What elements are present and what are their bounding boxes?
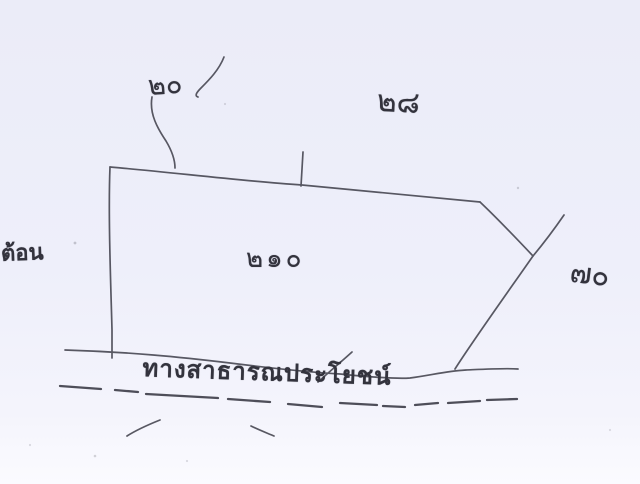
right-connector-line [480,202,533,256]
label-arrow-stroke [196,57,224,97]
left-boundary-line [109,167,112,358]
stray-mark-right [251,426,274,436]
scanned-land-sketch: ๒๐ ๒๘ ๒๑๐ ๗๐ ต้อน ทางสาธารณประโยชน์ [0,0,640,484]
sketch-linework [0,0,640,484]
parcel-number-label: ๒๑๐ [246,246,305,272]
measure-label-top-left: ๒๐ [147,71,183,100]
measure-label-top-right: ๒๘ [376,87,420,119]
label-leader-squiggle [151,97,175,168]
top-boundary-line [110,167,480,202]
road-dashed-line [60,386,517,407]
right-boundary-line [455,215,564,369]
stray-mark-left [127,420,160,436]
boundary-tick [301,152,303,186]
left-edge-text-label: ต้อน [1,242,44,265]
scan-speckles [29,103,611,462]
measure-label-right: ๗๐ [568,258,611,292]
